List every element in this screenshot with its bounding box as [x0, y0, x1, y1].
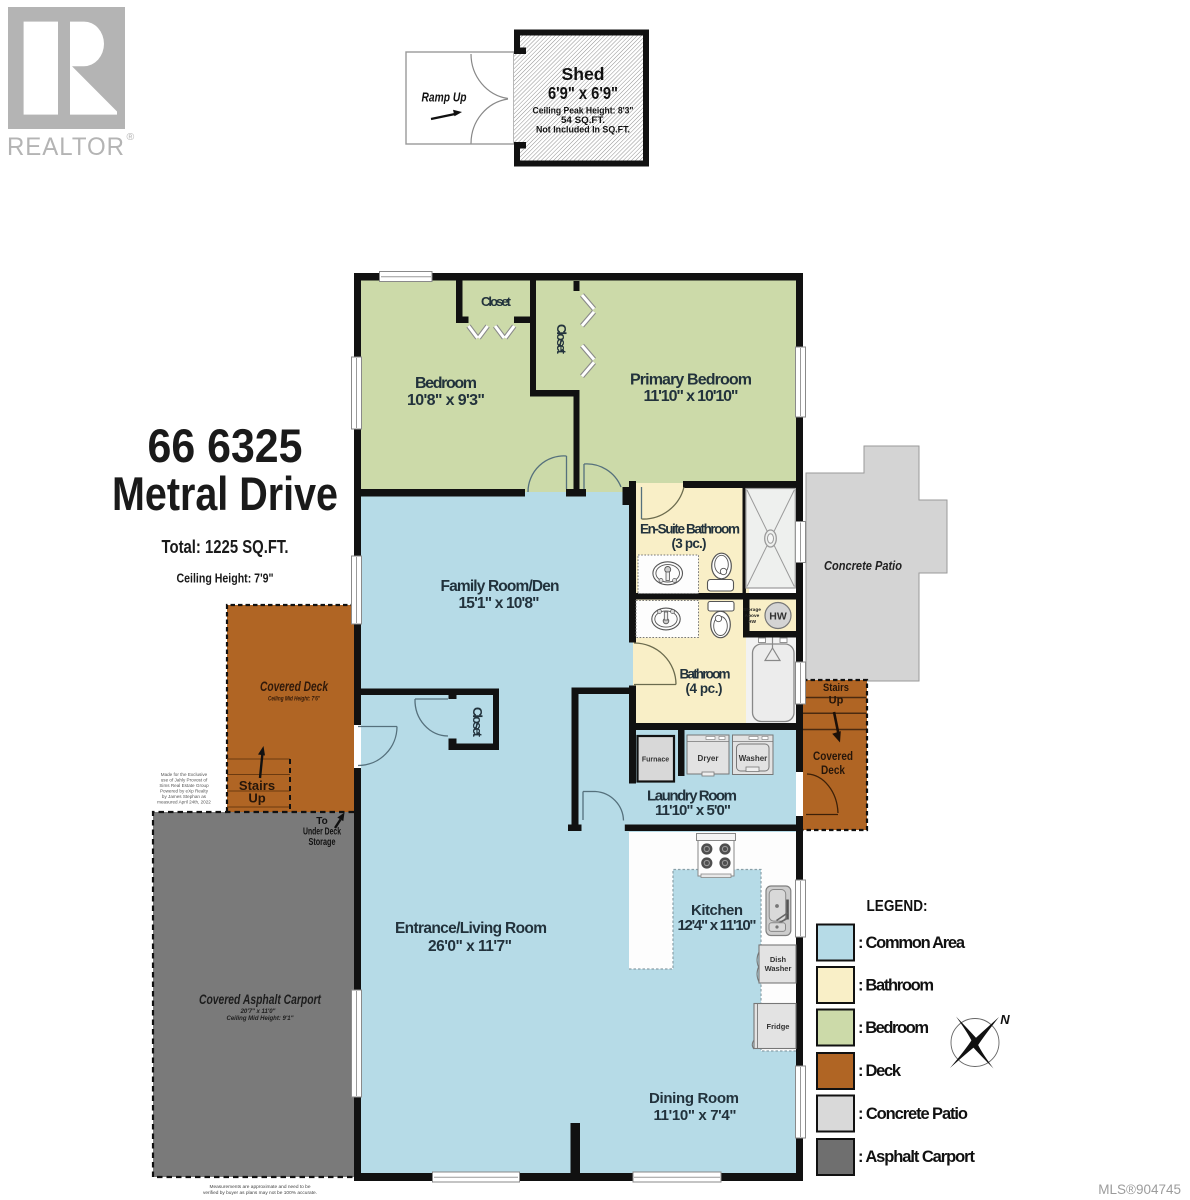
- svg-text:Ceiling Mid Height: 9'1": Ceiling Mid Height: 9'1": [227, 1016, 294, 1022]
- svg-text:11'10" x 7'4": 11'10" x 7'4": [654, 1107, 737, 1124]
- svg-text:6'9" x 6'9": 6'9" x 6'9": [548, 83, 618, 103]
- svg-text:Ramp Up: Ramp Up: [422, 91, 467, 105]
- svg-text:N: N: [1000, 1012, 1010, 1027]
- svg-text:En-Suite Bathroom: En-Suite Bathroom: [640, 522, 740, 537]
- svg-text:Closet: Closet: [470, 707, 485, 738]
- svg-text:HW: HW: [748, 619, 756, 625]
- svg-text:REALTOR: REALTOR: [7, 133, 125, 161]
- svg-text:Metral Drive: Metral Drive: [112, 467, 338, 520]
- svg-text:(4 pc.): (4 pc.): [686, 681, 723, 696]
- svg-text:12'4" x 11'10": 12'4" x 11'10": [678, 917, 757, 934]
- svg-text:15'1" x 10'8": 15'1" x 10'8": [459, 595, 540, 612]
- svg-text:Above: Above: [745, 613, 760, 619]
- svg-text:11'10" x 10'10": 11'10" x 10'10": [644, 388, 739, 405]
- svg-text:: Common Area: : Common Area: [858, 934, 966, 952]
- svg-text:Concrete Patio: Concrete Patio: [824, 558, 902, 573]
- svg-text:Sims Real Estate Group: Sims Real Estate Group: [159, 783, 209, 788]
- svg-text:MLS®904745: MLS®904745: [1098, 1182, 1181, 1197]
- svg-text:Deck: Deck: [821, 765, 846, 777]
- svg-text:Storage: Storage: [743, 607, 761, 613]
- svg-text:Up: Up: [829, 695, 844, 707]
- svg-text:Fridge: Fridge: [767, 1022, 790, 1031]
- svg-text:Covered Deck: Covered Deck: [260, 679, 329, 694]
- svg-text:use of Jahly Provost of: use of Jahly Provost of: [161, 778, 208, 783]
- svg-text:Covered: Covered: [813, 751, 853, 763]
- svg-text:Powered by eXp Realty: Powered by eXp Realty: [160, 789, 209, 794]
- svg-text:: Asphalt Carport: : Asphalt Carport: [858, 1148, 976, 1166]
- svg-text:Family Room/Den: Family Room/Den: [441, 578, 560, 595]
- svg-text:Not Included In SQ.FT.: Not Included In SQ.FT.: [536, 125, 630, 136]
- svg-text:Bathroom: Bathroom: [680, 667, 731, 682]
- svg-text:HW: HW: [769, 611, 787, 623]
- svg-text:Stairs: Stairs: [823, 682, 849, 694]
- svg-text:11'10" x 5'0": 11'10" x 5'0": [655, 802, 731, 819]
- svg-text:Entrance/Living Room: Entrance/Living Room: [395, 920, 547, 937]
- svg-text:10'8" x 9'3": 10'8" x 9'3": [407, 392, 485, 409]
- svg-text:LEGEND:: LEGEND:: [867, 898, 928, 915]
- svg-text:66 6325: 66 6325: [148, 419, 303, 472]
- svg-text:Covered Asphalt Carport: Covered Asphalt Carport: [199, 992, 321, 1007]
- svg-text:by James Stephan as: by James Stephan as: [162, 794, 207, 799]
- svg-text:Made for the Exclusive: Made for the Exclusive: [161, 772, 208, 777]
- svg-text:Ceiling Height: 7'9": Ceiling Height: 7'9": [177, 571, 274, 586]
- svg-text:Furnace: Furnace: [642, 757, 669, 764]
- svg-text:Dining Room: Dining Room: [649, 1090, 739, 1107]
- svg-text:measured April 24th, 2022: measured April 24th, 2022: [157, 800, 211, 805]
- svg-text:: Concrete Patio: : Concrete Patio: [858, 1105, 968, 1123]
- svg-text:: Bedroom: : Bedroom: [858, 1019, 929, 1037]
- svg-text:Measurements are approximate a: Measurements are approximate and need to…: [209, 1184, 310, 1190]
- svg-text:Total: 1225 SQ.FT.: Total: 1225 SQ.FT.: [162, 537, 289, 557]
- svg-text:Dryer: Dryer: [698, 754, 719, 763]
- svg-text:20'7" x 11'0": 20'7" x 11'0": [240, 1009, 276, 1015]
- svg-text:: Bathroom: : Bathroom: [858, 977, 934, 995]
- svg-text:®: ®: [127, 131, 135, 143]
- svg-text:To: To: [316, 816, 327, 827]
- svg-text:Closet: Closet: [481, 294, 512, 309]
- svg-text:Up: Up: [248, 791, 265, 806]
- svg-text:Closet: Closet: [554, 324, 569, 355]
- svg-text:Primary Bedroom: Primary Bedroom: [630, 372, 752, 389]
- svg-text:26'0" x 11'7": 26'0" x 11'7": [428, 938, 512, 955]
- svg-text:Washer: Washer: [739, 754, 768, 763]
- svg-text:Dish: Dish: [770, 955, 787, 964]
- svg-text:(3 pc.): (3 pc.): [672, 536, 707, 551]
- svg-text:Storage: Storage: [309, 837, 336, 848]
- svg-text:Washer: Washer: [765, 964, 792, 973]
- svg-text:Ceiling Mid Height: 7'6": Ceiling Mid Height: 7'6": [268, 697, 320, 703]
- svg-text:Bedroom: Bedroom: [415, 375, 477, 392]
- svg-text:: Deck: : Deck: [858, 1062, 902, 1080]
- svg-text:verified by buyer as plans may: verified by buyer as plans may not be 10…: [203, 1190, 317, 1196]
- svg-text:Shed: Shed: [562, 64, 605, 84]
